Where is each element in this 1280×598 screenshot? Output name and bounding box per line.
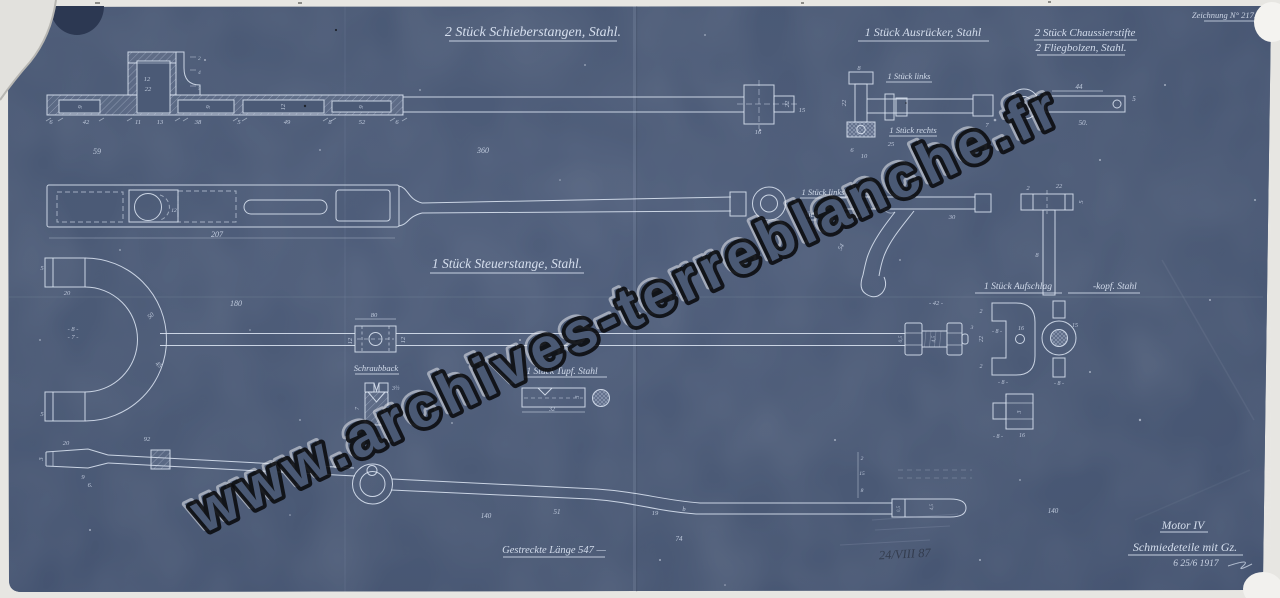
svg-text:22: 22 <box>784 100 791 107</box>
svg-text:92: 92 <box>144 436 151 443</box>
svg-text:12: 12 <box>347 337 354 344</box>
svg-text:74: 74 <box>676 535 684 543</box>
svg-text:1 Stück Steuerstange, Stahl.: 1 Stück Steuerstange, Stahl. <box>432 256 582 271</box>
svg-text:-kopf. Stahl: -kopf. Stahl <box>1093 281 1137 292</box>
svg-text:2: 2 <box>980 364 983 370</box>
svg-text:11: 11 <box>135 119 141 126</box>
svg-text:Motor IV: Motor IV <box>1161 520 1206 532</box>
svg-text:15: 15 <box>799 107 806 114</box>
svg-text:0,5: 0,5 <box>897 505 902 512</box>
svg-text:3: 3 <box>970 325 974 331</box>
svg-text:12: 12 <box>144 76 151 83</box>
svg-text:- 8 -: - 8 - <box>992 329 1002 335</box>
svg-text:22: 22 <box>979 336 985 342</box>
svg-text:19: 19 <box>652 510 659 517</box>
svg-text:- 8 -: - 8 - <box>1054 381 1064 387</box>
svg-text:3: 3 <box>575 396 581 400</box>
svg-text:2: 2 <box>980 309 983 315</box>
svg-text:2 Fliegbolzen, Stahl.: 2 Fliegbolzen, Stahl. <box>1035 42 1126 54</box>
svg-text:5: 5 <box>198 86 201 92</box>
svg-text:2 Stück Schieberstangen, Stahl: 2 Stück Schieberstangen, Stahl. <box>445 25 621 40</box>
svg-text:59: 59 <box>93 147 101 156</box>
svg-text:22: 22 <box>841 99 848 106</box>
svg-text:22: 22 <box>145 86 152 93</box>
svg-text:50.: 50. <box>1079 119 1088 127</box>
svg-text:13: 13 <box>157 119 164 126</box>
svg-text:- 7 -: - 7 - <box>68 334 79 341</box>
svg-text:3: 3 <box>1017 411 1023 415</box>
svg-text:4,5: 4,5 <box>930 335 937 342</box>
svg-text:12: 12 <box>400 336 407 343</box>
svg-text:20: 20 <box>64 290 71 297</box>
svg-text:Schmiedeteile mit Gz.: Schmiedeteile mit Gz. <box>1133 540 1237 554</box>
svg-text:- 8 -: - 8 - <box>993 434 1003 440</box>
svg-text:32: 32 <box>548 407 555 413</box>
svg-text:Zeichnung N° 217.: Zeichnung N° 217. <box>1192 10 1256 20</box>
svg-text:30: 30 <box>948 214 956 221</box>
svg-text:6 25/6 1917: 6 25/6 1917 <box>1173 559 1220 569</box>
svg-text:140: 140 <box>1048 507 1059 515</box>
svg-text:Gestreckte Länge 547 —: Gestreckte Länge 547 — <box>502 545 606 556</box>
svg-text:49: 49 <box>284 119 291 126</box>
svg-text:4: 4 <box>198 69 201 76</box>
svg-text:5: 5 <box>1132 95 1136 103</box>
svg-text:8: 8 <box>861 488 864 494</box>
svg-text:1 Stück Aufschlag: 1 Stück Aufschlag <box>984 281 1052 292</box>
svg-text:2: 2 <box>861 456 864 462</box>
svg-text:140: 140 <box>481 512 492 520</box>
svg-text:- 8 -: - 8 - <box>68 326 79 333</box>
svg-text:2 Stück Chaussierstifte: 2 Stück Chaussierstifte <box>1035 27 1136 39</box>
svg-text:180: 180 <box>230 299 242 308</box>
svg-text:1 Stück links: 1 Stück links <box>888 71 932 81</box>
svg-text:12: 12 <box>171 208 177 214</box>
svg-text:38: 38 <box>194 119 202 126</box>
svg-text:4,5: 4,5 <box>930 503 935 510</box>
svg-text:6.: 6. <box>88 482 93 489</box>
svg-text:15: 15 <box>859 471 865 477</box>
svg-text:360: 360 <box>476 146 489 155</box>
svg-text:16: 16 <box>1019 433 1025 439</box>
svg-text:51: 51 <box>554 508 561 516</box>
svg-text:207: 207 <box>211 230 224 239</box>
svg-text:52: 52 <box>359 119 366 126</box>
svg-text:24/VIII 87: 24/VIII 87 <box>879 546 932 563</box>
svg-text:42: 42 <box>83 119 90 126</box>
svg-text:22: 22 <box>1056 183 1063 190</box>
svg-text:2: 2 <box>198 56 201 62</box>
svg-text:16: 16 <box>1018 326 1024 332</box>
svg-text:20: 20 <box>63 440 70 447</box>
svg-text:12: 12 <box>280 103 287 110</box>
svg-text:1 Stück Ausrücker, Stahl: 1 Stück Ausrücker, Stahl <box>865 25 982 39</box>
svg-text:- 42 -: - 42 - <box>929 300 943 307</box>
svg-text:0,5: 0,5 <box>898 335 904 342</box>
svg-text:80: 80 <box>371 312 378 319</box>
svg-text:44: 44 <box>1076 83 1084 91</box>
svg-text:Schraubback: Schraubback <box>354 363 399 373</box>
svg-text:- 8 -: - 8 - <box>998 380 1008 386</box>
svg-text:15: 15 <box>1072 323 1078 329</box>
